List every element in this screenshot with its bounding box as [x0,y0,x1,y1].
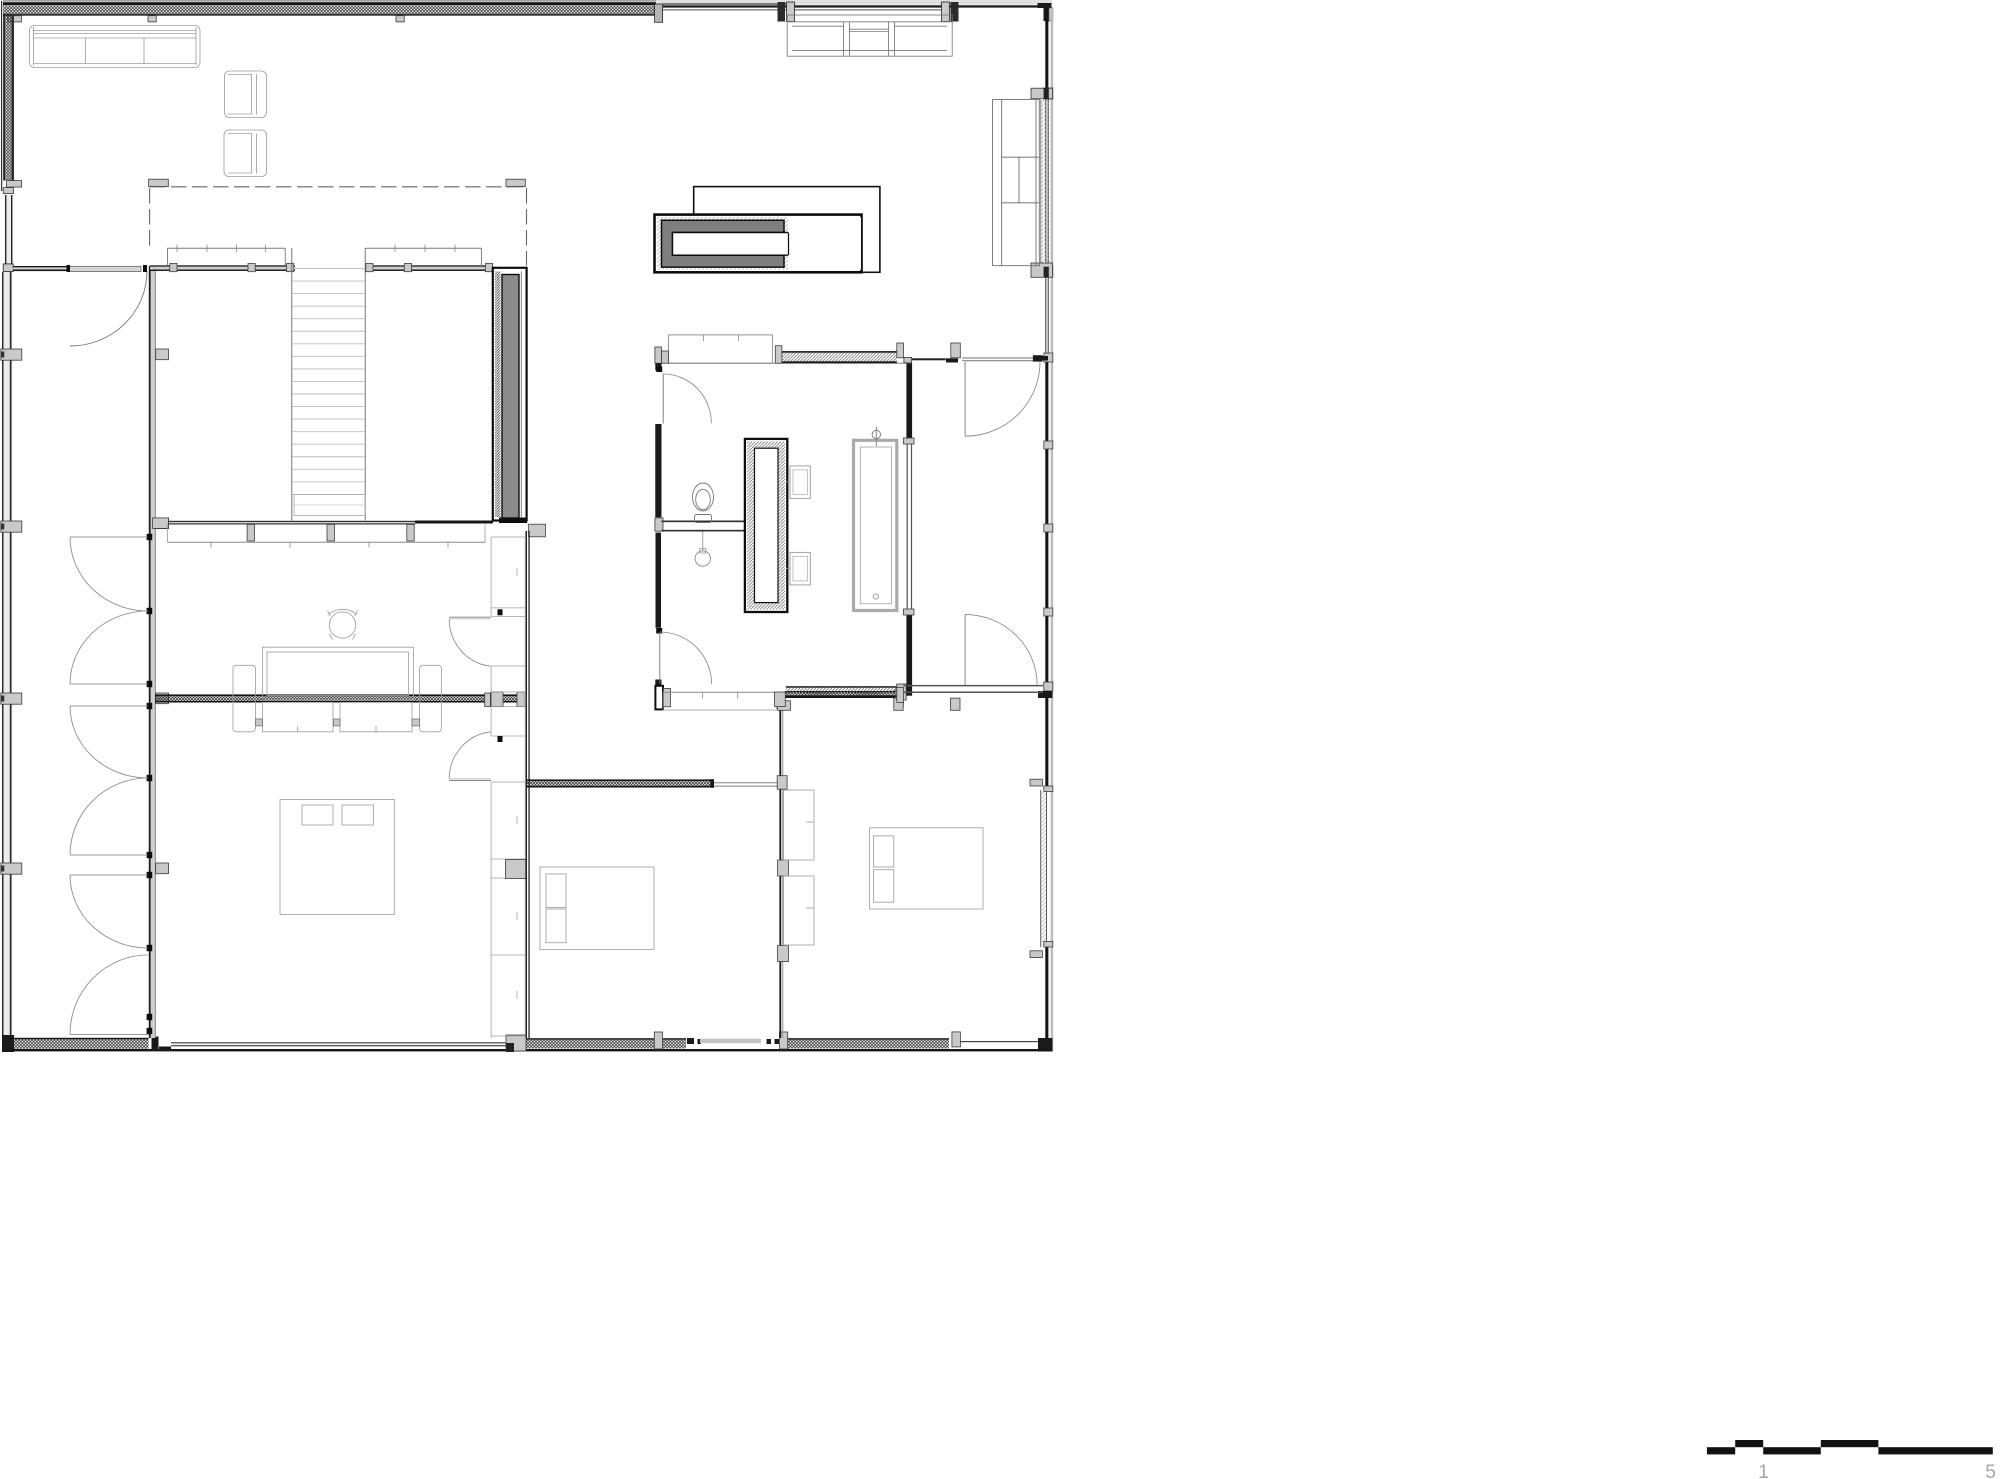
svg-text:5: 5 [1985,1462,1996,1479]
svg-text:1: 1 [1758,1462,1769,1479]
